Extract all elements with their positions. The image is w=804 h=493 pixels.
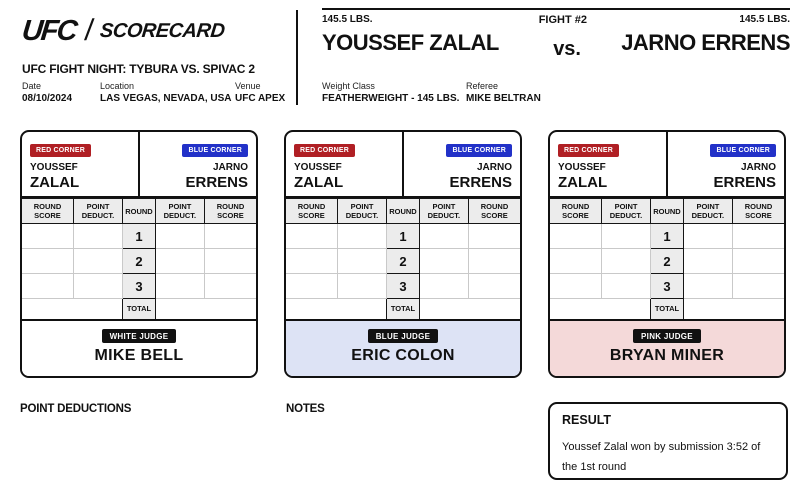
event-venue: Venue UFC APEX <box>235 81 285 104</box>
card-fighters-header: RED CORNER YOUSSEF ZALAL BLUE CORNER JAR… <box>286 132 520 198</box>
blue-round-score-cell <box>732 224 784 249</box>
blue-total-cell <box>683 299 784 319</box>
blue-fighter-last-name: ERRENS <box>713 174 776 191</box>
ufc-scorecard-page: UFC / SCORECARD UFC FIGHT NIGHT: TYBURA … <box>0 0 804 493</box>
judge-footer: PINK JUDGE BRYAN MINER <box>550 319 784 377</box>
round-2-row: 2 <box>286 249 520 274</box>
referee-label: Referee <box>466 81 541 91</box>
col-header-round: ROUND <box>651 199 684 224</box>
blue-round-score-cell <box>468 274 520 299</box>
red-corner-badge: RED CORNER <box>294 144 355 157</box>
blue-corner-badge: BLUE CORNER <box>182 144 248 157</box>
fight-number: FIGHT #2 <box>468 14 587 26</box>
round-3-row: 3 <box>286 274 520 299</box>
judge-scorecard: RED CORNER YOUSSEF ZALAL BLUE CORNER JAR… <box>284 130 522 378</box>
judge-role-badge: WHITE JUDGE <box>102 329 177 343</box>
red-fighter-last-name: ZALAL <box>558 174 658 191</box>
col-header-point-deduct-red: POINT DEDUCT. <box>73 199 122 224</box>
red-corner-fighter: YOUSSEF ZALAL <box>558 162 658 191</box>
event-date: Date 08/10/2024 <box>22 81 72 104</box>
blue-fighter-first-name: JARNO <box>713 162 776 174</box>
venue-value: UFC APEX <box>235 93 285 104</box>
red-fighter-weight: 145.5 LBS. <box>322 14 373 25</box>
round-number-cell: 1 <box>387 224 420 249</box>
score-table: ROUND SCORE POINT DEDUCT. ROUND POINT DE… <box>550 198 784 319</box>
event-title: UFC FIGHT NIGHT: TYBURA VS. SPIVAC 2 <box>22 62 255 76</box>
judge-scorecard: RED CORNER YOUSSEF ZALAL BLUE CORNER JAR… <box>548 130 786 378</box>
blue-round-score-cell <box>204 249 256 274</box>
red-corner-fighter: YOUSSEF ZALAL <box>30 162 130 191</box>
blue-point-deduct-cell <box>683 224 732 249</box>
round-1-row: 1 <box>550 224 784 249</box>
red-round-score-cell <box>22 249 73 274</box>
red-corner-section: RED CORNER YOUSSEF ZALAL <box>22 132 140 196</box>
col-header-round: ROUND <box>387 199 420 224</box>
red-corner-badge: RED CORNER <box>558 144 619 157</box>
logo-slash-divider: / <box>83 14 95 48</box>
round-3-row: 3 <box>550 274 784 299</box>
referee-value: MIKE BELTRAN <box>466 93 541 104</box>
blue-fighter-last-name: ERRENS <box>185 174 248 191</box>
col-header-point-deduct-red: POINT DEDUCT. <box>337 199 386 224</box>
red-point-deduct-cell <box>73 249 122 274</box>
card-fighters-header: RED CORNER YOUSSEF ZALAL BLUE CORNER JAR… <box>22 132 256 198</box>
total-label-cell: TOTAL <box>123 299 156 319</box>
red-corner-fighter: YOUSSEF ZALAL <box>294 162 394 191</box>
header-top-rule <box>322 8 790 10</box>
blue-corner-badge: BLUE CORNER <box>446 144 512 157</box>
blue-corner-badge: BLUE CORNER <box>710 144 776 157</box>
red-fighter-first-name: YOUSSEF <box>30 162 130 174</box>
red-total-cell <box>550 299 651 319</box>
judge-name: ERIC COLON <box>351 347 454 365</box>
round-2-row: 2 <box>22 249 256 274</box>
score-table-header-row: ROUND SCORE POINT DEDUCT. ROUND POINT DE… <box>550 199 784 224</box>
col-header-round-score-red: ROUND SCORE <box>22 199 73 224</box>
blue-round-score-cell <box>732 249 784 274</box>
weight-class-value: FEATHERWEIGHT - 145 LBS. <box>322 93 459 104</box>
event-location: Location LAS VEGAS, NEVADA, USA <box>100 81 232 104</box>
header-vertical-divider <box>296 10 298 105</box>
red-round-score-cell <box>22 224 73 249</box>
red-fighter-last-name: ZALAL <box>294 174 394 191</box>
round-number-cell: 3 <box>387 274 420 299</box>
total-row: TOTAL <box>22 299 256 319</box>
blue-point-deduct-cell <box>155 274 204 299</box>
total-row: TOTAL <box>286 299 520 319</box>
red-round-score-cell <box>22 274 73 299</box>
score-table: ROUND SCORE POINT DEDUCT. ROUND POINT DE… <box>22 198 256 319</box>
red-point-deduct-cell <box>601 249 650 274</box>
red-point-deduct-cell <box>337 249 386 274</box>
round-number-cell: 2 <box>387 249 420 274</box>
col-header-point-deduct-blue: POINT DEDUCT. <box>683 199 732 224</box>
red-round-score-cell <box>550 224 601 249</box>
red-fighter-first-name: YOUSSEF <box>558 162 658 174</box>
venue-label: Venue <box>235 81 285 91</box>
blue-total-cell <box>155 299 256 319</box>
blue-corner-fighter: JARNO ERRENS <box>713 162 776 191</box>
total-row: TOTAL <box>550 299 784 319</box>
red-point-deduct-cell <box>337 274 386 299</box>
referee-block: Referee MIKE BELTRAN <box>466 81 541 104</box>
total-label-cell: TOTAL <box>651 299 684 319</box>
judge-role-badge: PINK JUDGE <box>633 329 701 343</box>
red-total-cell <box>22 299 123 319</box>
red-fighter-first-name: YOUSSEF <box>294 162 394 174</box>
score-table: ROUND SCORE POINT DEDUCT. ROUND POINT DE… <box>286 198 520 319</box>
red-total-cell <box>286 299 387 319</box>
blue-point-deduct-cell <box>419 274 468 299</box>
fight-number-block: FIGHT #2 vs. <box>468 14 587 61</box>
blue-round-score-cell <box>468 249 520 274</box>
red-round-score-cell <box>550 249 601 274</box>
col-header-round-score-red: ROUND SCORE <box>550 199 601 224</box>
judge-name: MIKE BELL <box>95 347 184 365</box>
result-label: RESULT <box>562 413 774 427</box>
red-round-score-cell <box>550 274 601 299</box>
red-point-deduct-cell <box>601 274 650 299</box>
blue-corner-section: BLUE CORNER JARNO ERRENS <box>140 132 256 196</box>
blue-total-cell <box>419 299 520 319</box>
red-point-deduct-cell <box>337 224 386 249</box>
red-round-score-cell <box>286 224 337 249</box>
red-point-deduct-cell <box>601 224 650 249</box>
blue-point-deduct-cell <box>155 249 204 274</box>
date-label: Date <box>22 81 72 91</box>
notes-label: NOTES <box>286 403 325 415</box>
col-header-point-deduct-blue: POINT DEDUCT. <box>419 199 468 224</box>
weight-class-label: Weight Class <box>322 81 459 91</box>
blue-point-deduct-cell <box>419 249 468 274</box>
blue-point-deduct-cell <box>155 224 204 249</box>
blue-round-score-cell <box>732 274 784 299</box>
round-number-cell: 3 <box>651 274 684 299</box>
round-1-row: 1 <box>286 224 520 249</box>
round-number-cell: 1 <box>123 224 156 249</box>
judge-footer: BLUE JUDGE ERIC COLON <box>286 319 520 377</box>
red-point-deduct-cell <box>73 274 122 299</box>
red-point-deduct-cell <box>73 224 122 249</box>
blue-corner-fighter: JARNO ERRENS <box>449 162 512 191</box>
blue-fighter-first-name: JARNO <box>449 162 512 174</box>
blue-round-score-cell <box>204 224 256 249</box>
vs-label: vs. <box>468 38 587 61</box>
scorecard-wordmark: SCORECARD <box>99 20 226 43</box>
round-3-row: 3 <box>22 274 256 299</box>
col-header-round: ROUND <box>123 199 156 224</box>
date-value: 08/10/2024 <box>22 93 72 104</box>
score-table-header-row: ROUND SCORE POINT DEDUCT. ROUND POINT DE… <box>286 199 520 224</box>
round-1-row: 1 <box>22 224 256 249</box>
round-number-cell: 2 <box>651 249 684 274</box>
red-fighter-last-name: ZALAL <box>30 174 130 191</box>
blue-fighter-weight: 145.5 LBS. <box>739 14 790 25</box>
blue-point-deduct-cell <box>419 224 468 249</box>
judge-scorecard: RED CORNER YOUSSEF ZALAL BLUE CORNER JAR… <box>20 130 258 378</box>
blue-corner-section: BLUE CORNER JARNO ERRENS <box>668 132 784 196</box>
col-header-round-score-blue: ROUND SCORE <box>468 199 520 224</box>
result-text: Youssef Zalal won by submission 3:52 of … <box>562 437 774 477</box>
total-label-cell: TOTAL <box>387 299 420 319</box>
round-number-cell: 2 <box>123 249 156 274</box>
blue-corner-fighter: JARNO ERRENS <box>185 162 248 191</box>
score-table-header-row: ROUND SCORE POINT DEDUCT. ROUND POINT DE… <box>22 199 256 224</box>
location-label: Location <box>100 81 232 91</box>
blue-fighter-last-name: ERRENS <box>449 174 512 191</box>
card-fighters-header: RED CORNER YOUSSEF ZALAL BLUE CORNER JAR… <box>550 132 784 198</box>
col-header-round-score-red: ROUND SCORE <box>286 199 337 224</box>
round-number-cell: 1 <box>651 224 684 249</box>
red-corner-badge: RED CORNER <box>30 144 91 157</box>
blue-round-score-cell <box>204 274 256 299</box>
judge-role-badge: BLUE JUDGE <box>368 329 439 343</box>
judge-footer: WHITE JUDGE MIKE BELL <box>22 319 256 377</box>
round-number-cell: 3 <box>123 274 156 299</box>
point-deductions-label: POINT DEDUCTIONS <box>20 403 131 415</box>
red-round-score-cell <box>286 274 337 299</box>
red-round-score-cell <box>286 249 337 274</box>
round-2-row: 2 <box>550 249 784 274</box>
location-value: LAS VEGAS, NEVADA, USA <box>100 93 232 104</box>
col-header-point-deduct-blue: POINT DEDUCT. <box>155 199 204 224</box>
blue-point-deduct-cell <box>683 274 732 299</box>
col-header-point-deduct-red: POINT DEDUCT. <box>601 199 650 224</box>
blue-fighter-first-name: JARNO <box>185 162 248 174</box>
red-corner-section: RED CORNER YOUSSEF ZALAL <box>286 132 404 196</box>
blue-round-score-cell <box>468 224 520 249</box>
brand-header: UFC / SCORECARD <box>22 14 224 48</box>
red-corner-section: RED CORNER YOUSSEF ZALAL <box>550 132 668 196</box>
col-header-round-score-blue: ROUND SCORE <box>204 199 256 224</box>
scorecards-row: RED CORNER YOUSSEF ZALAL BLUE CORNER JAR… <box>20 130 786 378</box>
result-box: RESULT Youssef Zalal won by submission 3… <box>548 402 788 480</box>
blue-fighter-name: JARNO ERRENS <box>621 30 790 56</box>
blue-corner-section: BLUE CORNER JARNO ERRENS <box>404 132 520 196</box>
ufc-logo: UFC <box>20 15 77 48</box>
blue-point-deduct-cell <box>683 249 732 274</box>
judge-name: BRYAN MINER <box>610 347 724 365</box>
col-header-round-score-blue: ROUND SCORE <box>732 199 784 224</box>
weight-class-block: Weight Class FEATHERWEIGHT - 145 LBS. <box>322 81 459 104</box>
